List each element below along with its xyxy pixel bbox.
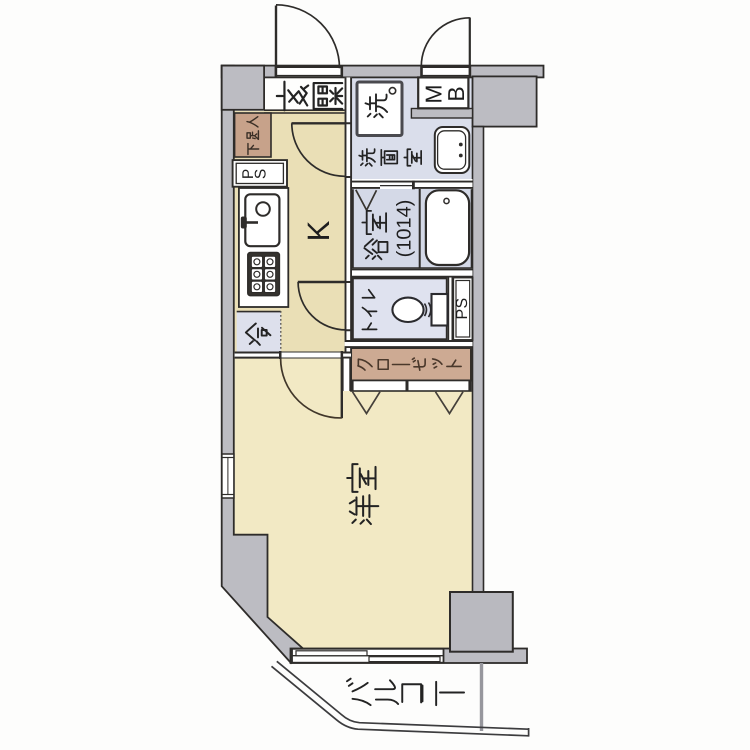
svg-text:S: S (253, 169, 270, 179)
svg-text:K: K (301, 220, 336, 241)
svg-text:(1014): (1014) (394, 200, 416, 258)
svg-text:B: B (443, 86, 469, 101)
svg-text:PS: PS (454, 298, 471, 320)
